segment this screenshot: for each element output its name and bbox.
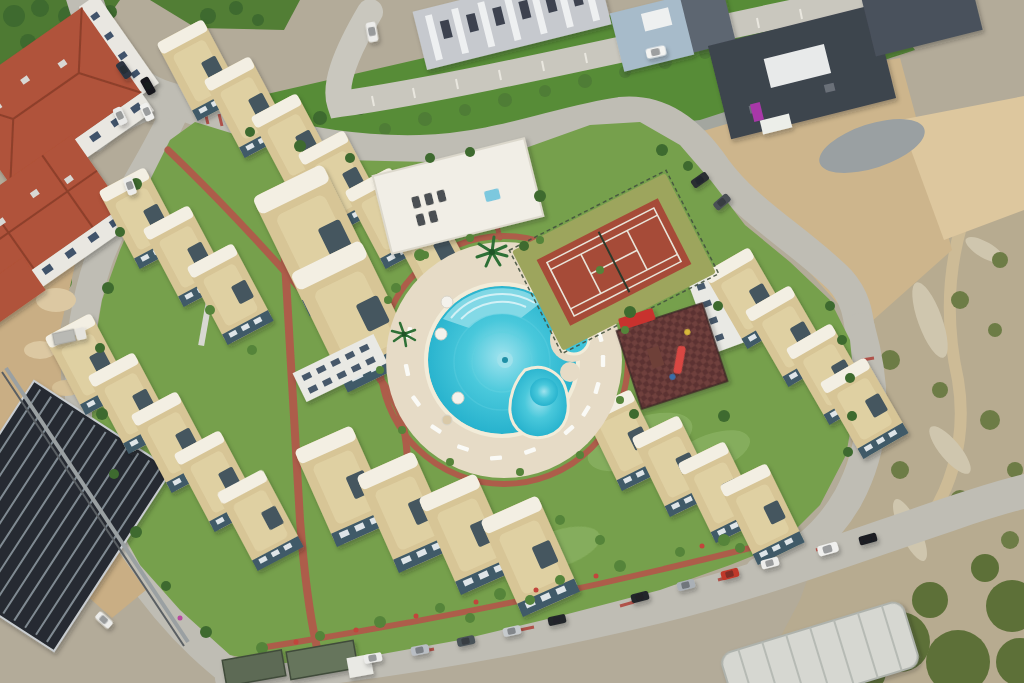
deck-peninsula [560,362,580,382]
aerial-photo [0,0,1024,683]
aerial-photo-stage [0,0,1024,683]
